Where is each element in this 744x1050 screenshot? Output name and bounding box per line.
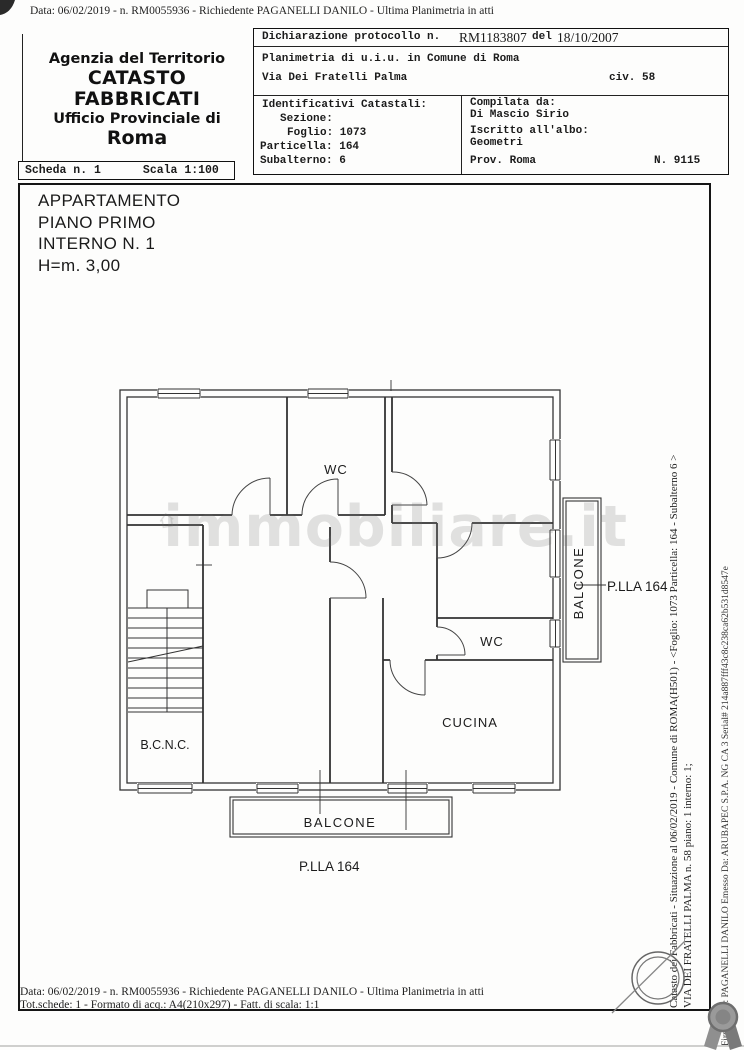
cadastral-document-page: Data: 06/02/2019 - n. RM0055936 - Richie… [0,0,744,1050]
section-ticks [196,380,606,830]
label-plla-bottom: P.LLA 164 [299,859,360,874]
footer-line2: Tot.schede: 1 - Formato di acq.: A4(210x… [20,999,319,1011]
signature-stamp [612,941,685,1013]
label-balcone-bottom: BALCONE [304,815,377,830]
label-wc-mid: WC [480,634,504,649]
floor-plan-drawing: WC WC CUCINA B.C.N.C. BALCONE BALCONE P.… [0,0,744,1050]
label-plla-right: P.LLA 164 [607,579,668,594]
label-balcone-right: BALCONE [571,547,586,620]
door-swings [232,472,472,695]
label-wc-top: WC [324,462,348,477]
staircase [128,590,203,712]
label-cucina: CUCINA [442,715,498,730]
windows [137,388,561,794]
label-bcnc: B.C.N.C. [140,738,189,752]
footer-line1: Data: 06/02/2019 - n. RM0055936 - Richie… [20,986,484,998]
scan-corner-mark [0,0,20,20]
rosette-seal-icon [704,1003,742,1050]
